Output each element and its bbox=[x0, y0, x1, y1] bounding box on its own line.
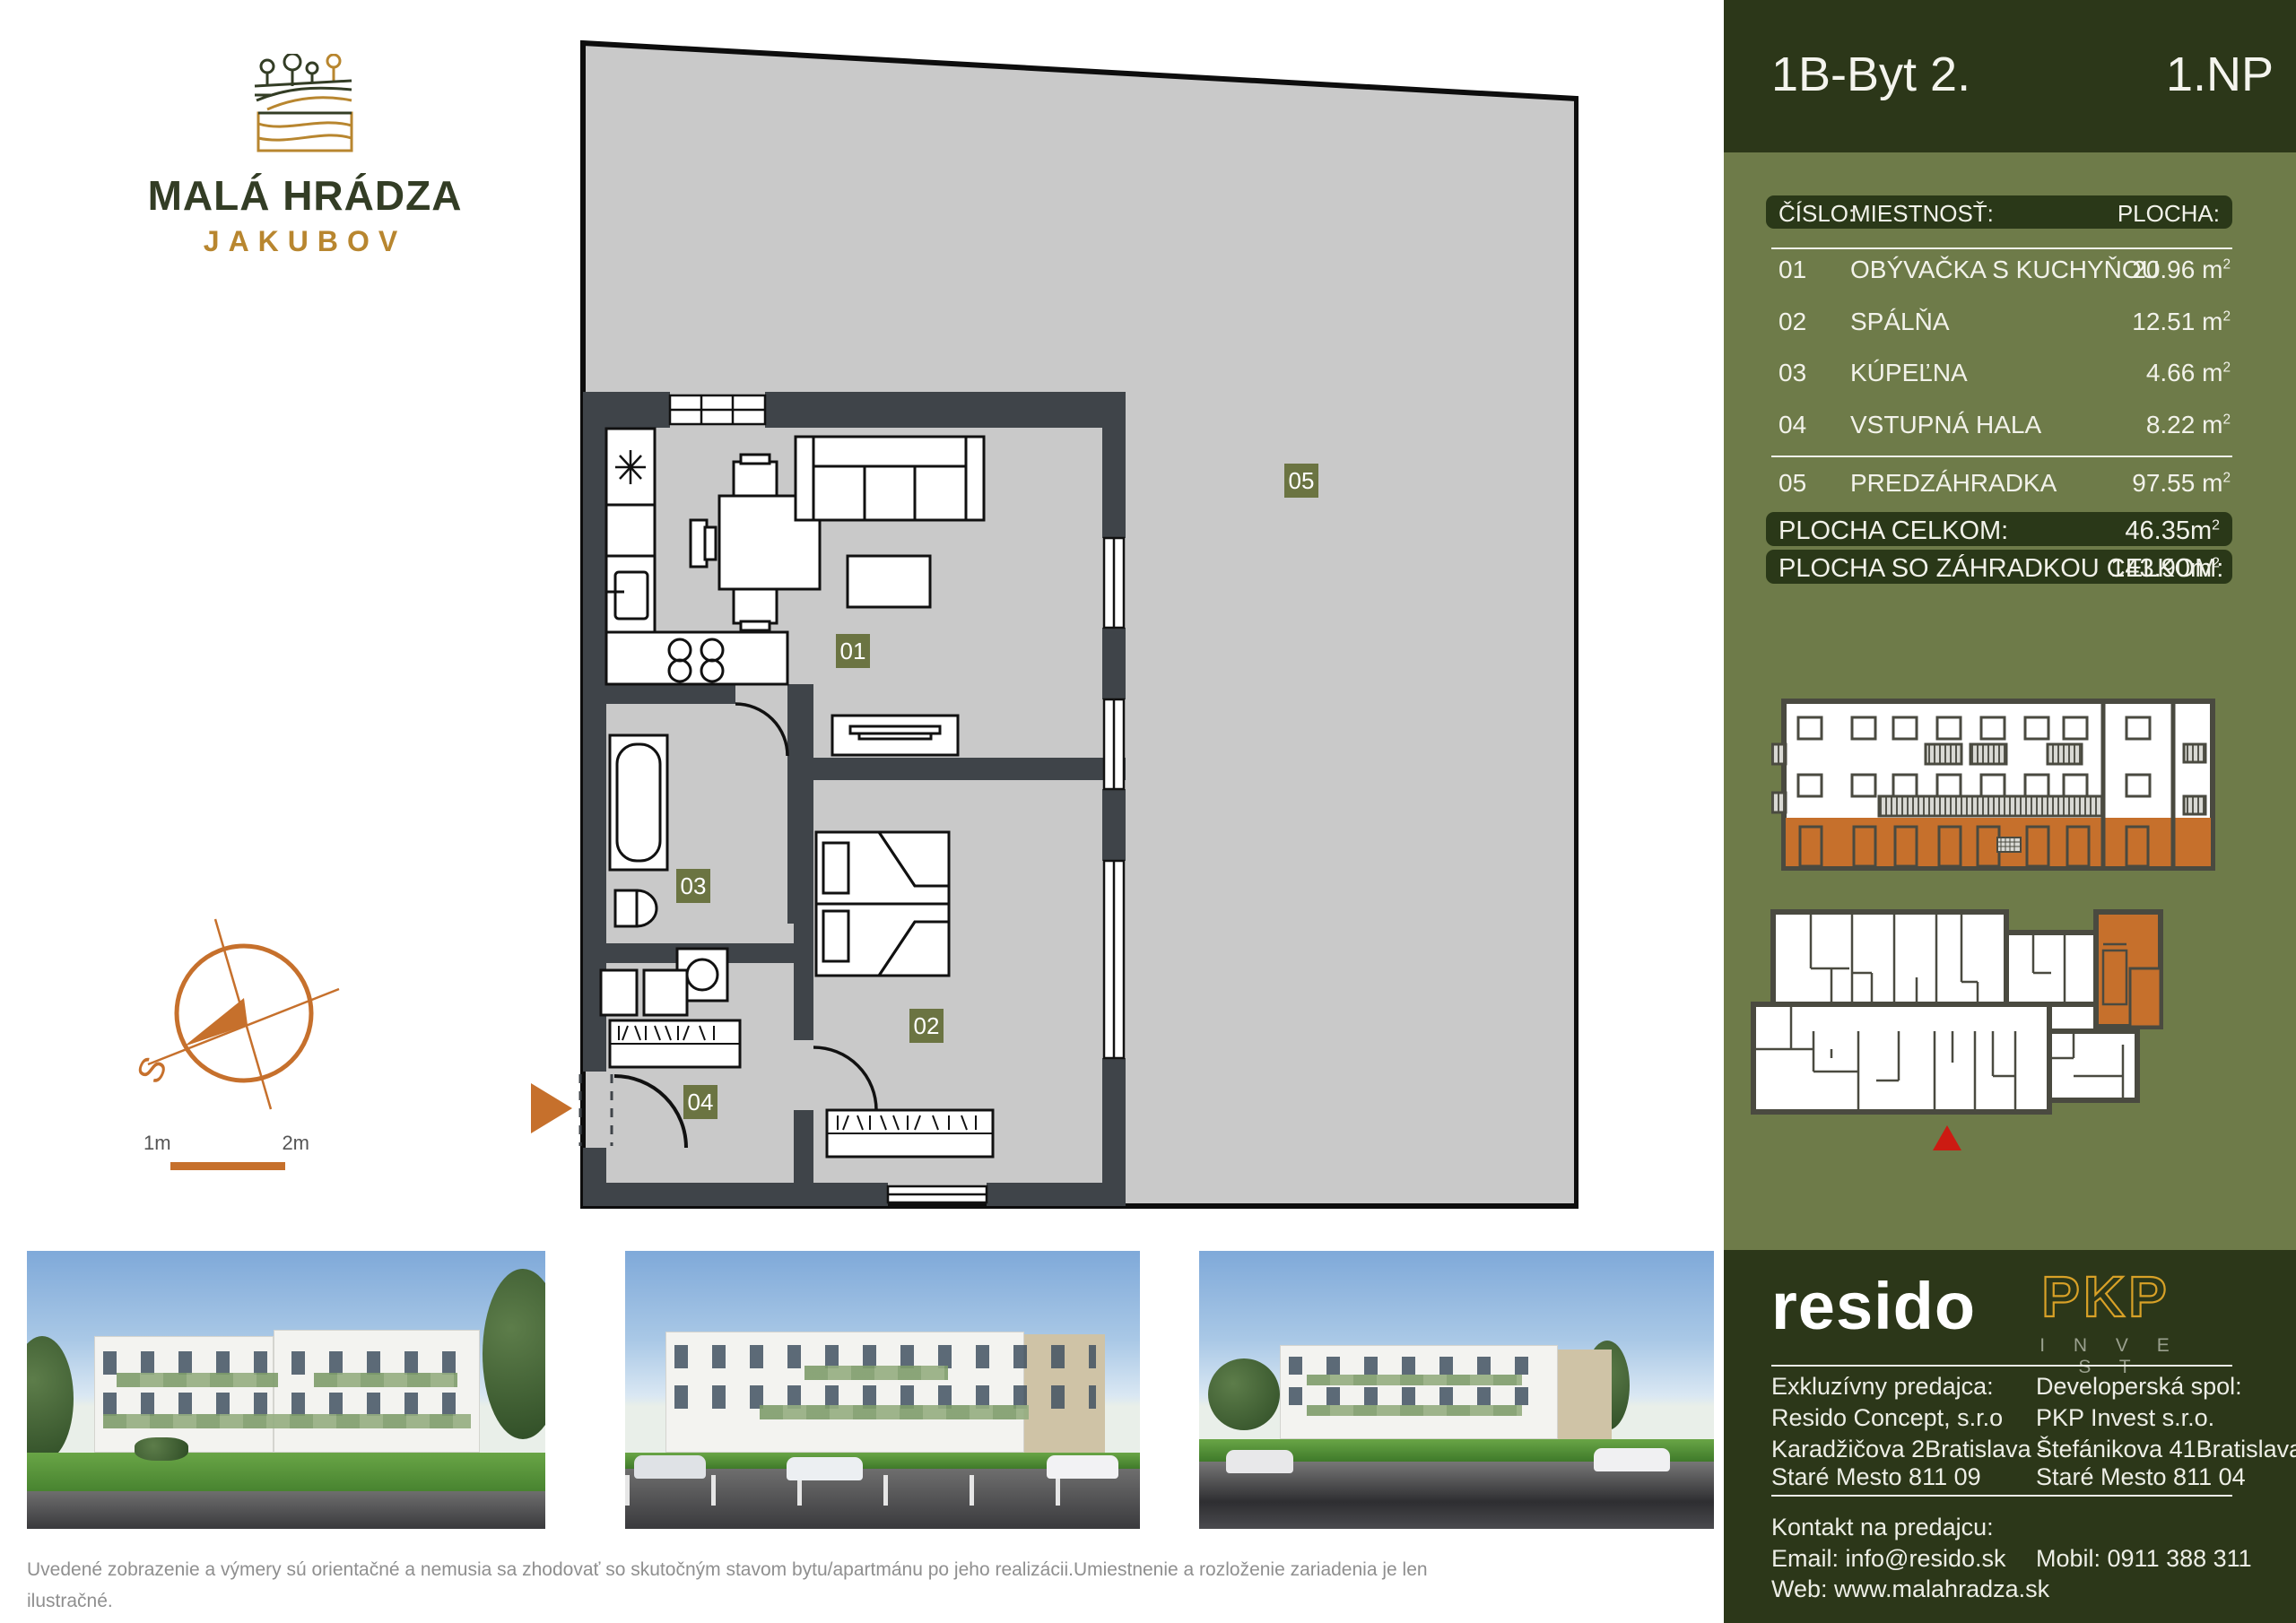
seller-heading: Exkluzívny predajca: bbox=[1771, 1372, 1994, 1401]
entrance-arrow-icon bbox=[531, 1083, 572, 1133]
room-label-04: 04 bbox=[688, 1089, 714, 1115]
pkp-logo: PKP I N V E S T bbox=[2025, 1266, 2187, 1378]
room-label-05: 05 bbox=[1289, 467, 1315, 494]
total-garden-bar: PLOCHA SO ZÁHRADKOU CELKOM: 143.90m2 bbox=[1766, 550, 2232, 584]
brochure-sheet: MALÁ HRÁDZA JAKUBOV bbox=[0, 0, 2296, 1623]
contact-email: Email: info@resido.sk bbox=[1771, 1544, 2006, 1573]
room-name: SPÁLŇA bbox=[1850, 308, 1950, 336]
room-row-04: 04VSTUPNÁ HALA8.22 m2 bbox=[1771, 411, 2232, 441]
room-name: VSTUPNÁ HALA bbox=[1850, 411, 2041, 439]
room-name: KÚPEĽNA bbox=[1850, 359, 1968, 387]
table-divider-top bbox=[1771, 247, 2232, 249]
table-divider-garden bbox=[1771, 456, 2232, 457]
room-area: 97.55 m2 bbox=[2132, 469, 2231, 498]
sidebar: 1B-Byt 2. 1.NP ČÍSLO: MIESTNOSŤ: PLOCHA:… bbox=[1724, 0, 2296, 1623]
developer-address-1: Štefánikova 41Bratislava - bbox=[2036, 1435, 2296, 1463]
building-key-plan bbox=[1746, 901, 2195, 1170]
developer-address-2: Staré Mesto 811 04 bbox=[2036, 1462, 2246, 1491]
room-label-01: 01 bbox=[840, 638, 866, 664]
bed bbox=[816, 832, 949, 976]
col-number: ČÍSLO: bbox=[1779, 200, 1855, 228]
room-area: 20.96 m2 bbox=[2132, 256, 2231, 284]
room-label-02: 02 bbox=[914, 1012, 940, 1039]
contact-web: Web: www.malahradza.sk bbox=[1771, 1575, 2049, 1603]
total-garden-value: 143.90m2 bbox=[2110, 554, 2220, 584]
room-area: 8.22 m2 bbox=[2146, 411, 2231, 439]
render-photo-1 bbox=[27, 1251, 545, 1529]
room-number: 04 bbox=[1779, 411, 1806, 439]
unit-header: 1B-Byt 2. 1.NP bbox=[1724, 0, 2296, 152]
total-label: PLOCHA CELKOM: bbox=[1779, 516, 2008, 546]
scale-1m: 1m bbox=[143, 1132, 171, 1155]
project-logo: MALÁ HRÁDZA JAKUBOV bbox=[135, 54, 475, 258]
room-name: OBÝVAČKA S KUCHYŇOU bbox=[1850, 256, 2160, 284]
room-name: PREDZÁHRADKA bbox=[1850, 469, 2057, 498]
render-photo-2 bbox=[625, 1251, 1140, 1529]
pkp-letters: PKP bbox=[2041, 1266, 2170, 1329]
pkp-logo-icon: PKP bbox=[2025, 1266, 2187, 1329]
developer-company: PKP Invest s.r.o. bbox=[2036, 1403, 2214, 1432]
developer-heading: Developerská spol: bbox=[2036, 1372, 2242, 1401]
room-area: 12.51 m2 bbox=[2132, 308, 2231, 336]
room-number: 02 bbox=[1779, 308, 1806, 336]
coffee-table bbox=[848, 556, 930, 607]
footer-divider-1 bbox=[1771, 1365, 2232, 1367]
resido-logo: resido bbox=[1771, 1268, 1976, 1344]
room-row-02: 02SPÁLŇA12.51 m2 bbox=[1771, 308, 2232, 338]
scale-bar: 1m 2m bbox=[143, 1132, 309, 1170]
render-photo-3 bbox=[1199, 1251, 1714, 1529]
compass-icon: S bbox=[135, 910, 368, 1134]
contact-mobile: Mobil: 0911 388 311 bbox=[2036, 1544, 2252, 1573]
contact-heading: Kontakt na predajcu: bbox=[1771, 1513, 1994, 1541]
unit-name: 1B-Byt 2. bbox=[1771, 47, 1970, 102]
disclaimer-line-2: Rozsah budovaného štandardu je popísaný … bbox=[27, 1617, 1462, 1623]
room-number: 03 bbox=[1779, 359, 1806, 387]
seller-company: Resido Concept, s.r.o bbox=[1771, 1403, 2003, 1432]
project-title: MALÁ HRÁDZA bbox=[135, 171, 475, 220]
room-table: 01OBÝVAČKA S KUCHYŇOU20.96 m202SPÁLŇA12.… bbox=[1771, 256, 2232, 516]
col-room: MIESTNOSŤ: bbox=[1851, 200, 1994, 228]
tv-sideboard bbox=[832, 716, 958, 755]
entrance-marker-icon bbox=[1933, 1125, 1961, 1150]
scale-2m: 2m bbox=[282, 1132, 309, 1155]
sidebar-footer: resido PKP I N V E S T Exkluzívny predaj… bbox=[1724, 1250, 2296, 1623]
scale-bar-line bbox=[170, 1162, 285, 1170]
room-area: 4.66 m2 bbox=[2146, 359, 2231, 387]
disclaimer: Uvedené zobrazenie a výmery sú orientačn… bbox=[27, 1554, 1462, 1623]
col-area: PLOCHA: bbox=[2118, 200, 2220, 228]
footer-divider-2 bbox=[1771, 1495, 2232, 1497]
room-row-03: 03KÚPEĽNA4.66 m2 bbox=[1771, 359, 2232, 389]
room-row-01: 01OBÝVAČKA S KUCHYŇOU20.96 m2 bbox=[1771, 256, 2232, 286]
total-value: 46.35m2 bbox=[2125, 516, 2220, 546]
seller-address-2: Staré Mesto 811 09 bbox=[1771, 1462, 1981, 1491]
room-row-05: 05PREDZÁHRADKA97.55 m2 bbox=[1771, 469, 2232, 499]
sofa bbox=[796, 437, 984, 520]
floor-plan: 01 02 03 04 05 bbox=[520, 18, 1578, 1211]
disclaimer-line-1: Uvedené zobrazenie a výmery sú orientačn… bbox=[27, 1554, 1462, 1617]
room-label-03: 03 bbox=[681, 872, 707, 899]
room-number: 05 bbox=[1779, 469, 1806, 498]
hall-wardrobe bbox=[610, 1020, 740, 1067]
seller-address-1: Karadžičova 2Bratislava - bbox=[1771, 1435, 2046, 1463]
project-subtitle: JAKUBOV bbox=[135, 225, 475, 258]
table-header: ČÍSLO: MIESTNOSŤ: PLOCHA: bbox=[1766, 195, 2232, 229]
total-area-bar: PLOCHA CELKOM: 46.35m2 bbox=[1766, 512, 2232, 546]
floor-name: 1.NP bbox=[2166, 47, 2274, 102]
bedroom-wardrobe bbox=[827, 1110, 993, 1157]
building-elevation-diagram bbox=[1771, 692, 2229, 881]
room-number: 01 bbox=[1779, 256, 1806, 284]
logo-fields-icon bbox=[251, 54, 359, 154]
